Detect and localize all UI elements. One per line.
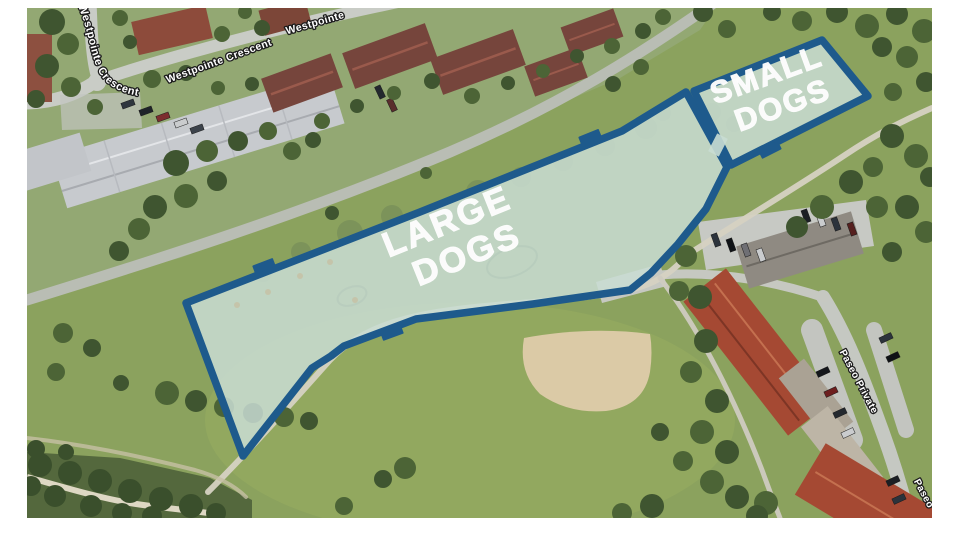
satellite-photo: Westpointe Crescent Westpointe Crescent … bbox=[13, 0, 949, 540]
aerial-map-image: Westpointe Crescent Westpointe Crescent … bbox=[0, 0, 960, 540]
map-canvas: Westpointe Crescent Westpointe Crescent … bbox=[0, 0, 960, 540]
